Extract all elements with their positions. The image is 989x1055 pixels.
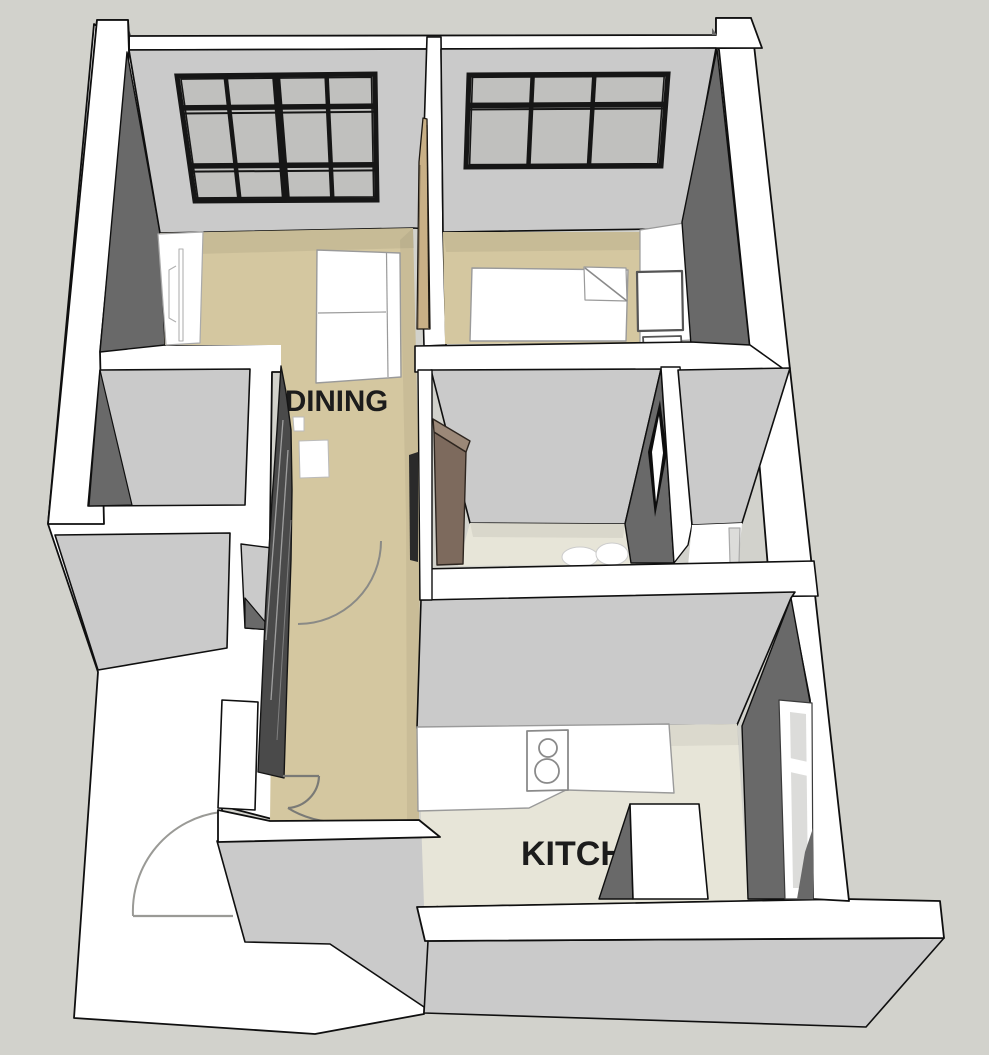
svg-text:DINING: DINING (285, 385, 388, 418)
